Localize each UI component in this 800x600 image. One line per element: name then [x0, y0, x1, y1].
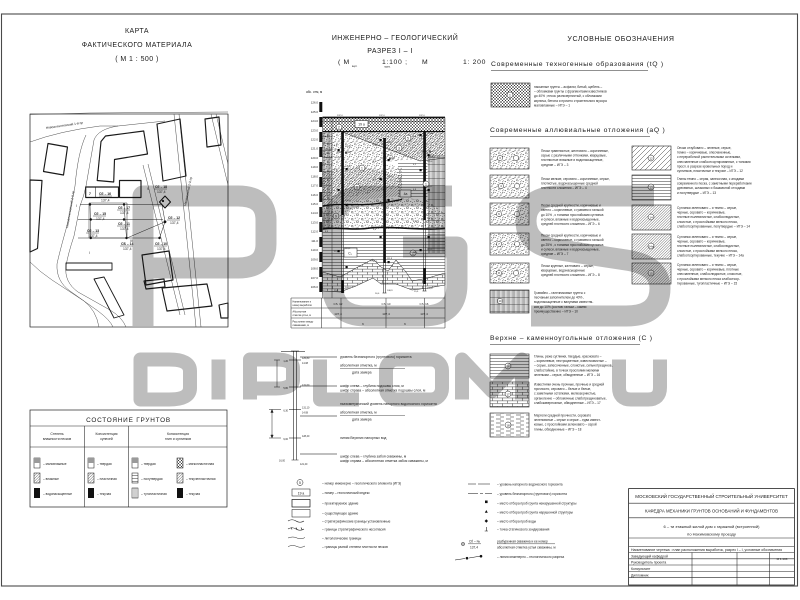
svg-text:ФАКТИЧЕСКОГО МАТЕРИАЛА: ФАКТИЧЕСКОГО МАТЕРИАЛА: [82, 42, 192, 49]
svg-text:Консистенция: Консистенция: [96, 432, 118, 436]
svg-text:I: I: [76, 204, 77, 208]
svg-text:9,00: 9,00: [283, 438, 288, 441]
svg-text:( М 1 : 500 ): ( М 1 : 500 ): [115, 56, 159, 63]
svg-text:14а: 14а: [648, 244, 653, 248]
svg-text:137,4: 137,4: [157, 247, 166, 251]
svg-text:черные, серовато – коричневые,: черные, серовато – коричневые,: [677, 211, 726, 215]
svg-text:– границы разной степени пло: – границы разной степени плотности песко…: [322, 545, 388, 549]
svg-text:116.0: 116.0: [311, 193, 318, 197]
svg-text:Суглинки зеленовато – и темно: Суглинки зеленовато – и темно – серые,: [677, 206, 737, 210]
svg-text:14.08: 14.08: [302, 412, 309, 415]
svg-text:125,6: 125,6: [324, 153, 330, 155]
svg-text:– проектируемое здание: – проектируемое здание: [322, 502, 359, 506]
svg-text:112.0: 112.0: [311, 230, 318, 234]
svg-text:Мергели средней прочности, сер: Мергели средней прочности, серовато: [534, 414, 591, 418]
svg-text:дресвяных, шлаковых и башмачно: дресвяных, шлаковых и башмачной отходами: [677, 186, 745, 190]
svg-text:137,4: 137,4: [123, 247, 132, 251]
svg-text:106.0: 106.0: [311, 285, 319, 289]
svg-text:117,1: 117,1: [427, 218, 433, 220]
svg-text:5: 5: [407, 136, 409, 140]
svg-text:118,6: 118,6: [387, 176, 393, 178]
svg-text:121,6: 121,6: [427, 161, 433, 163]
svg-text:125,80: 125,80: [302, 357, 310, 360]
svg-text:3: 3: [398, 146, 400, 150]
svg-text:серые с различными оттенками,: серые с различными оттенками, кварцевые,: [541, 154, 607, 158]
svg-text:6 – ти этажный жилой дом с гар: 6 – ти этажный жилой дом с гаражной (вст…: [664, 524, 761, 529]
svg-text:14: 14: [649, 215, 653, 219]
svg-text:5: 5: [299, 481, 301, 485]
svg-text:107.0: 107.0: [311, 276, 319, 280]
svg-text:2: 2: [338, 125, 340, 129]
svg-text:слабоотсортированные, полутвер: слабоотсортированные, полутвердые – ИГЭ …: [677, 224, 750, 228]
svg-text:Сб – 17: Сб – 17: [118, 206, 130, 210]
svg-text:слоистые, с прослойками мелког: слоистые, с прослойками мелкого песка,: [677, 249, 738, 253]
svg-text:дата замера: дата замера: [352, 371, 372, 375]
svg-text:и полутвердые – ИГЭ – 13: и полутвердые – ИГЭ – 13: [677, 191, 716, 195]
svg-text:глины, обводненные – ИГЭ – 18: глины, обводненные – ИГЭ – 18: [534, 427, 582, 431]
svg-text:М 1:100: М 1:100: [777, 557, 788, 561]
svg-text:глин и суглинков: глин и суглинков: [165, 437, 191, 441]
svg-text:РАЗРЕЗ I – I: РАЗРЕЗ I – I: [367, 48, 412, 55]
svg-text:– текучая: – текучая: [97, 492, 111, 496]
svg-text:Современные техногенные обра: Современные техногенные образования (tQ …: [491, 60, 664, 68]
svg-text:Известняки очень прочные, проч: Известняки очень прочные, прочные и сред…: [534, 383, 604, 387]
svg-text:зеленоватые – серые и серые –: зеленоватые – серые и серые – едва извес…: [534, 418, 601, 422]
svg-text:– пластичная: – пластичная: [97, 477, 117, 481]
svg-text:М: М: [422, 59, 428, 66]
svg-text:– текучая: – текучая: [186, 492, 200, 496]
svg-text:слабостойкие, в точках прослоя: слабостойкие, в точках прослоями мелкими: [534, 368, 599, 372]
svg-text:ГВ 14.08: ГВ 14.08: [324, 149, 334, 151]
svg-text:– место отбора проб грунта н: – место отбора проб грунта ненарушенной …: [497, 501, 577, 505]
svg-text:КАРТА: КАРТА: [125, 28, 149, 35]
svg-text:113.0: 113.0: [311, 221, 318, 225]
svg-text:137,4: 137,4: [170, 221, 179, 225]
svg-text:Дипломник: Дипломник: [631, 573, 649, 577]
svg-text:– мягкопластичная: – мягкопластичная: [186, 462, 214, 466]
svg-text:17: 17: [506, 392, 510, 396]
svg-text:слабоотсортированные, текучие: слабоотсортированные, текучие – ИГЭ – 14…: [677, 253, 744, 257]
svg-text:– серые, запесоченные, слоисты: – серые, запесоченные, слоистые, сильнот…: [534, 364, 613, 368]
svg-text:– маловлажные: – маловлажные: [43, 462, 67, 466]
svg-text:119,9: 119,9: [387, 155, 393, 157]
svg-text:Сб – 13: Сб – 13: [87, 229, 99, 233]
svg-text:Сб – 12: Сб – 12: [168, 216, 180, 220]
svg-text:по Нахимовскому проезду: по Нахимовскому проезду: [687, 532, 736, 537]
svg-text:121,40: 121,40: [300, 463, 308, 466]
svg-text:Суглинки зеленовато – и темно: Суглинки зеленовато – и темно – серые,: [677, 235, 737, 239]
svg-text:Современные аллювиальные отл: Современные аллювиальные отложения (аQ ): [490, 127, 665, 134]
svg-text:Консистенция: Консистенция: [167, 432, 189, 436]
svg-text:126.0: 126.0: [311, 101, 319, 105]
svg-text:Наименование чертежа : пла: Наименование чертежа : план расположения…: [631, 548, 782, 552]
svg-text:черные, серовато – коричневые,: черные, серовато – коричневые,: [677, 240, 726, 244]
svg-text:124.0: 124.0: [311, 119, 319, 123]
svg-text:123,4: 123,4: [334, 157, 340, 159]
svg-text:137,4: 137,4: [120, 211, 129, 215]
svg-text:115.0: 115.0: [311, 202, 318, 206]
svg-text:137,4: 137,4: [470, 546, 478, 550]
svg-text:Опоки отзубовато – зеленые, се: Опоки отзубовато – зеленые, серые,: [677, 146, 731, 150]
svg-text:128,40: 128,40: [302, 435, 310, 438]
svg-text:кварцевые, водонасыщенные: кварцевые, водонасыщенные: [541, 269, 585, 273]
svg-text:плотные пылеватистые, слабослю: плотные пылеватистые, слабослюдистые,: [677, 244, 740, 248]
svg-text:137,4: 137,4: [419, 115, 425, 117]
svg-text:– номер – геологический инде: – номер – геологический индекс: [322, 491, 370, 495]
svg-text:супесей: супесей: [100, 437, 113, 441]
svg-text:1: 1: [361, 166, 363, 170]
svg-text:маловлажные – ИГЭ – 1: маловлажные – ИГЭ – 1: [534, 103, 570, 107]
svg-text:Сб – №: Сб – №: [469, 540, 481, 544]
svg-text:Верхне – каменноугольные от: Верхне – каменноугольные отложения (С ): [490, 335, 653, 342]
svg-text:– уровень безнапорного (грун: – уровень безнапорного (грунтового) гори…: [497, 492, 567, 496]
svg-text:– место отбора проб грунта н: – место отбора проб грунта нарушенной ст…: [497, 511, 574, 515]
svg-text:средней плотности сложения – И: средней плотности сложения – ИГЭ – 8: [541, 273, 600, 277]
svg-text:разбуренная скважина и ее номе: разбуренная скважина и ее номер: [497, 540, 548, 544]
svg-text:отметка устья, м: отметка устья, м: [293, 314, 312, 317]
svg-text:121.0: 121.0: [311, 147, 319, 151]
svg-text:108.0: 108.0: [311, 267, 319, 271]
svg-text:Сб. 10: Сб. 10: [382, 302, 391, 306]
svg-text:123.0: 123.0: [311, 128, 319, 132]
svg-text:7: 7: [89, 192, 91, 196]
svg-text:органогенно – обломочные слабо: органогенно – обломочные слаботрещиноват…: [534, 396, 607, 400]
svg-text:I: I: [89, 251, 90, 255]
svg-text:Сб – 16: Сб – 16: [99, 192, 111, 196]
svg-text:– границы стратиграфического: – границы стратиграфического несогласия: [322, 528, 386, 532]
svg-text:– влажные: – влажные: [43, 477, 59, 481]
svg-text:Суглинки зеленовато – и темно: Суглинки зеленовато – и темно – серые,: [677, 263, 737, 267]
svg-text:19 а: 19 а: [298, 491, 305, 495]
svg-text:тированные, тугопластичные – И: тированные, тугопластичные – ИГЭ – 15: [677, 281, 737, 285]
svg-text:19 а: 19 а: [358, 123, 365, 127]
svg-text:– литологические границы: – литологические границы: [322, 537, 362, 541]
svg-text:– коричневые, пестроцветные, и: – коричневые, пестроцветные, известковис…: [534, 359, 607, 363]
svg-text:абсолютная отметка, м: абсолютная отметка, м: [340, 364, 377, 368]
svg-text:Глины темно – серая, запесочна: Глины темно – серая, запесочная, с анода…: [677, 177, 744, 181]
svg-text:Пески крупные, желтовато – сер: Пески крупные, желтовато – серые,: [541, 264, 594, 268]
svg-text:ковые, с прослойками зеленоват: ковые, с прослойками зеленовато – серой: [534, 423, 597, 427]
svg-text:109,6: 109,6: [427, 288, 433, 290]
svg-text:Степень: Степень: [50, 432, 63, 436]
svg-text:14.08: 14.08: [302, 362, 309, 365]
svg-text:водонасыщенные с валунами изве: водонасыщенные с валунами известня-: [534, 300, 593, 304]
svg-text:шифр слева – глубина подошвы с: шифр слева – глубина подошвы слоя, м: [340, 384, 404, 388]
svg-text:– точка статического зондиро: – точка статического зондирования: [497, 528, 550, 532]
svg-text:( М: ( М: [338, 59, 350, 66]
svg-text:137,4: 137,4: [337, 115, 343, 117]
svg-text:влажности песков: влажности песков: [43, 437, 72, 441]
svg-text:средние – ИГЭ – 3: средние – ИГЭ – 3: [541, 163, 569, 167]
svg-text:1: 200: 1: 200: [463, 59, 486, 66]
svg-text:опесчаненные слабоотсортирован: опесчаненные слабоотсортированные, с тон…: [677, 160, 751, 164]
svg-text:108,9: 108,9: [387, 290, 393, 292]
svg-text:120.0: 120.0: [311, 156, 319, 160]
svg-text:опесчаненные, слабослюдистые,: опесчаненные, слабослюдистые, слоистые,: [677, 272, 742, 276]
svg-text:и супеси, влажные и водонасыще: и супеси, влажные и водонасыщенные,: [541, 217, 600, 221]
svg-text:– твердая: – твердая: [141, 462, 156, 466]
svg-text:верт.: верт.: [352, 65, 358, 68]
svg-text:шифр справа – абсолютная отмет: шифр справа – абсолютная отметка забоя с…: [340, 459, 428, 463]
svg-text:– существующее здание: – существующее здание: [322, 512, 358, 516]
svg-text:с прослойками мелкого песка сл: с прослойками мелкого песка слабоотсор-: [677, 277, 740, 281]
svg-text:– обломками грунты с фрагмента: – обломками грунты с фрагментами известн…: [534, 90, 607, 94]
svg-text:6,30: 6,30: [283, 410, 288, 413]
svg-text:– уровень напорного водоносн: – уровень напорного водоносного горизонт…: [497, 483, 563, 487]
svg-text:Консультант: Консультант: [631, 567, 651, 571]
svg-text:насыпные грунты – асфальт, бит: насыпные грунты – асфальт, битый, щебень…: [534, 85, 602, 89]
svg-text:131,10: 131,10: [302, 407, 310, 410]
svg-text:гориз.: гориз.: [384, 66, 391, 69]
svg-text:Сб – 10: Сб – 10: [155, 242, 167, 246]
svg-text:абс. отм, м: абс. отм, м: [306, 90, 322, 94]
svg-text:линия Верхних напорных вод: линия Верхних напорных вод: [340, 436, 386, 440]
svg-text:абсолютная отметка, м: абсолютная отметка, м: [340, 411, 377, 415]
svg-text:плотистые, водонасыщенные сред: плотистые, водонасыщенные средней: [541, 182, 598, 186]
svg-text:номер выработки: номер выработки: [293, 304, 313, 307]
svg-text:светло – коричневые, с гравием: светло – коричневые, с гравием и галькой: [541, 208, 604, 212]
svg-text:песчаным заполнителем до 40% ,: песчаным заполнителем до 40% ,: [534, 296, 584, 300]
svg-text:137,4: 137,4: [101, 199, 110, 203]
svg-text:темно – коричневые, опесчаненн: темно – коричневые, опесчаненные,: [677, 151, 731, 155]
svg-text:111.0: 111.0: [311, 239, 318, 243]
svg-text:плотные пылеватистые, слабослю: плотные пылеватистые, слабослюдистые,: [677, 215, 740, 219]
svg-text:УСЛОВНЫЕ ОБОЗНАЧЕНИЯ: УСЛОВНЫЕ ОБОЗНАЧЕНИЯ: [567, 36, 674, 43]
svg-text:1: 1: [509, 93, 511, 97]
svg-text:шифр слева – глубина забоя скв: шифр слева – глубина забоя скважины, м: [340, 455, 407, 459]
svg-text:Заведующий кафедрой: Заведующий кафедрой: [631, 554, 668, 558]
svg-text:– стратиграфические границы: – стратиграфические границы установленны…: [322, 520, 391, 524]
svg-text:скважинами, м: скважинами, м: [293, 324, 310, 327]
svg-text:125.0: 125.0: [311, 110, 319, 114]
svg-text:плотнистые влажные и водонасы: плотнистые влажные и водонасыщенные,: [541, 158, 603, 162]
svg-text:Пески гравелистые, желтовато –: Пески гравелистые, желтовато – коричневы…: [541, 149, 609, 153]
svg-text:до 40% ; песок разнозернистый,: до 40% ; песок разнозернистый, с обломка…: [534, 94, 602, 98]
svg-text:Руководитель проекта: Руководитель проекта: [631, 561, 666, 565]
svg-text:– полутвердая: – полутвердая: [141, 477, 163, 481]
svg-text:ГВ 16.08: ГВ 16.08: [324, 157, 334, 159]
svg-text:Пески средней крупности, корич: Пески средней крупности, коричневые и: [541, 234, 601, 238]
svg-text:131,60: 131,60: [302, 384, 310, 387]
svg-text:123,1: 123,1: [387, 142, 393, 144]
svg-text:113,2: 113,2: [345, 248, 351, 250]
svg-text:дата замера: дата замера: [352, 418, 372, 422]
svg-text:18: 18: [506, 423, 510, 427]
svg-text:КАФЕДРА МЕХАНИКИ ГРУНТОВ ОСНОВ: КАФЕДРА МЕХАНИКИ ГРУНТОВ ОСНОВАНИЙ И ФУН…: [645, 509, 778, 514]
svg-text:– номер инженерно – геологич: – номер инженерно – геологического элеме…: [322, 482, 401, 486]
svg-text:черные, серовато – коричневые,: черные, серовато – коричневые, плотные: [677, 268, 739, 272]
svg-text:– линия инженерно – геологич: – линия инженерно – геологического разре…: [497, 555, 564, 559]
svg-text:124,3: 124,3: [345, 146, 351, 148]
svg-text:– место отбора проб воды: – место отбора проб воды: [497, 520, 537, 524]
svg-text:зелеными – серые, обводненные: зелеными – серые, обводненные – ИГЭ – 16: [534, 373, 600, 377]
svg-text:116,2: 116,2: [387, 227, 393, 229]
svg-text:Глины, реже суглинки, твердые,: Глины, реже суглинки, твердые, красноват…: [534, 355, 602, 359]
svg-text:– тугопластичная: – тугопластичная: [141, 492, 167, 496]
svg-text:137,4: 137,4: [379, 115, 385, 117]
svg-text:110.0: 110.0: [311, 248, 318, 252]
svg-text:137,4: 137,4: [120, 227, 129, 231]
svg-text:– твердая: – твердая: [97, 462, 112, 466]
svg-text:Гравийно – галечниковые грунты: Гравийно – галечниковые грунты с: [534, 291, 586, 295]
svg-text:прочности, серовато – белые и: прочности, серовато – белые и белые,: [534, 387, 591, 391]
svg-text:12: 12: [649, 156, 653, 160]
svg-text:с переработкой растительными о: с переработкой растительными остатками,: [677, 155, 741, 159]
svg-text:ИНЖЕНЕРНО – ГЕОЛОГИЧЕСКИЙ: ИНЖЕНЕРНО – ГЕОЛОГИЧЕСКИЙ: [332, 33, 458, 42]
svg-text:111,9: 111,9: [387, 258, 393, 260]
svg-text:суглинков, пластичные и текучи: суглинков, пластичные и текучие – ИГЭ – …: [677, 169, 743, 173]
svg-text:с заметными остатками, мелкозе: с заметными остатками, мелкозернистые,: [534, 392, 596, 396]
svg-text:слоистые, с прослойками мелког: слоистые, с прослойками мелкого песка,: [677, 220, 738, 224]
svg-text:117.0: 117.0: [311, 184, 318, 188]
svg-text:109,4: 109,4: [345, 287, 351, 289]
svg-text:10: 10: [498, 299, 502, 303]
svg-text:– текучепластичная: – текучепластичная: [186, 477, 216, 481]
svg-text:137,4: 137,4: [96, 217, 105, 221]
svg-text:109.0: 109.0: [311, 257, 319, 261]
svg-text:МОСКОВСКИЙ ГОСУДАРСТВЕННЫЙ СТР: МОСКОВСКИЙ ГОСУДАРСТВЕННЫЙ СТРОИТЕЛЬНЫЙ …: [635, 492, 788, 499]
svg-text:123,8: 123,8: [427, 133, 433, 135]
svg-text:137,4: 137,4: [89, 234, 98, 238]
svg-text:современного песка, с заметным: современного песка, с заметными перерабо…: [677, 182, 752, 186]
svg-text:до 10% , с тонкими прослойками: до 10% , с тонкими прослойками суглинка: [541, 213, 604, 217]
svg-text:просл. в разрезе кровельных по: просл. в разрезе кровельных пород и: [677, 164, 733, 168]
svg-text:Сб – 15: Сб – 15: [94, 212, 106, 216]
svg-text:119.0: 119.0: [311, 165, 318, 169]
svg-text:122.0: 122.0: [311, 138, 319, 142]
svg-text:средней плотности сложения – И: средней плотности сложения – ИГЭ – 6: [541, 222, 600, 226]
svg-text:– водонасыщенные: – водонасыщенные: [43, 492, 72, 496]
svg-text:абсолютная отметка устья скваж: абсолютная отметка устья скважины, м: [497, 546, 556, 550]
svg-text:слабокавернозные, обводненные: слабокавернозные, обводненные – ИГЭ – 17: [534, 401, 601, 405]
svg-text:122,4: 122,4: [345, 166, 351, 168]
svg-text:16,00: 16,00: [279, 460, 286, 463]
svg-text:Пески мелкие, серовато – корич: Пески мелкие, серовато – коричневые, сер…: [541, 177, 610, 181]
svg-text:СОСТОЯНИЕ ГРУНТОВ: СОСТОЯНИЕ ГРУНТОВ: [86, 417, 171, 424]
svg-text:кирпича, бетона и прочего стро: кирпича, бетона и прочего строительного …: [534, 99, 607, 103]
svg-text:Сб – 11: Сб – 11: [118, 222, 130, 226]
svg-text:118.0: 118.0: [311, 174, 318, 178]
svg-text:114.0: 114.0: [311, 211, 318, 215]
